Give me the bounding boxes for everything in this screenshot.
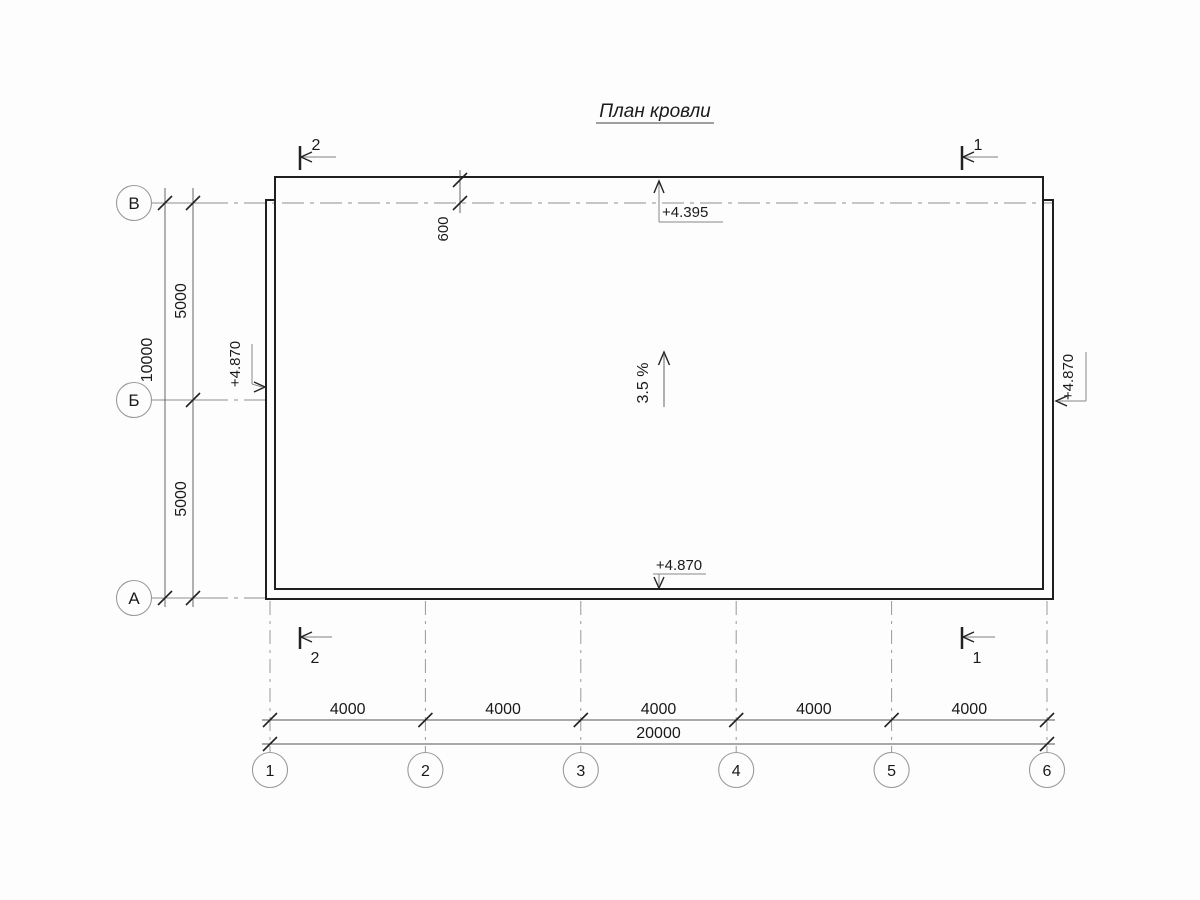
section-label-top-right: 1 xyxy=(974,137,983,154)
column-grid-bubbles: 1 2 3 4 5 6 xyxy=(253,753,1065,788)
dim-left-segment-2: 5000 xyxy=(173,481,190,517)
roof-edge-outline xyxy=(275,177,1043,589)
elevation-mark-right: +4.870 xyxy=(1056,352,1086,406)
grid-label-row-a: А xyxy=(128,589,140,608)
elevation-mark-top: +4.395 xyxy=(654,181,723,222)
section-label-bottom-right: 1 xyxy=(973,650,982,667)
overhang-dimension: 600 xyxy=(435,170,467,242)
section-label-top-left: 2 xyxy=(312,137,321,154)
elevation-top-value: +4.395 xyxy=(662,204,708,221)
grid-label-row-b: Б xyxy=(128,391,139,410)
grid-label-col-6: 6 xyxy=(1043,763,1052,780)
grid-label-col-1: 1 xyxy=(266,763,275,780)
row-axis-lines xyxy=(152,203,1054,598)
grid-label-col-2: 2 xyxy=(421,763,430,780)
grid-label-col-4: 4 xyxy=(732,763,741,780)
section-mark-top-left: 2 xyxy=(300,137,336,170)
slope-indicator: 3.5 % xyxy=(635,352,670,407)
dim-bottom-segment-2: 4000 xyxy=(485,701,521,718)
dim-overhang: 600 xyxy=(435,216,452,241)
elevation-mark-bottom: +4.870 xyxy=(653,557,706,588)
bottom-dimension-chain: 4000 4000 4000 4000 4000 20000 xyxy=(262,701,1055,751)
dim-bottom-segment-3: 4000 xyxy=(641,701,677,718)
dim-bottom-segment-5: 4000 xyxy=(952,701,988,718)
row-grid-bubbles: В Б А xyxy=(117,186,152,616)
right-arrow-icon xyxy=(254,382,265,392)
grid-label-col-3: 3 xyxy=(576,763,585,780)
elevation-left-value: +4.870 xyxy=(227,341,244,387)
elevation-bottom-value: +4.870 xyxy=(656,557,702,574)
roof-plan-drawing: План кровли 5000 5000 10000 600 xyxy=(0,0,1200,900)
slope-value: 3.5 % xyxy=(635,363,652,404)
section-label-bottom-left: 2 xyxy=(311,650,320,667)
elevation-right-value: +4.870 xyxy=(1060,354,1077,400)
section-mark-bottom-right: 1 xyxy=(962,627,995,667)
section-mark-top-right: 1 xyxy=(962,137,998,170)
grid-label-col-5: 5 xyxy=(887,763,896,780)
drawing-canvas: План кровли 5000 5000 10000 600 xyxy=(0,0,1200,900)
dim-bottom-segment-1: 4000 xyxy=(330,701,366,718)
elevation-mark-left: +4.870 xyxy=(227,341,265,392)
dim-bottom-total: 20000 xyxy=(636,725,681,742)
dim-left-total: 10000 xyxy=(139,338,156,383)
dim-bottom-segment-4: 4000 xyxy=(796,701,832,718)
grid-label-row-v: В xyxy=(128,194,139,213)
dim-left-segment-1: 5000 xyxy=(173,283,190,319)
building-wall-outline xyxy=(266,200,1053,599)
drawing-title: План кровли xyxy=(599,101,711,122)
section-mark-bottom-left: 2 xyxy=(300,627,332,667)
